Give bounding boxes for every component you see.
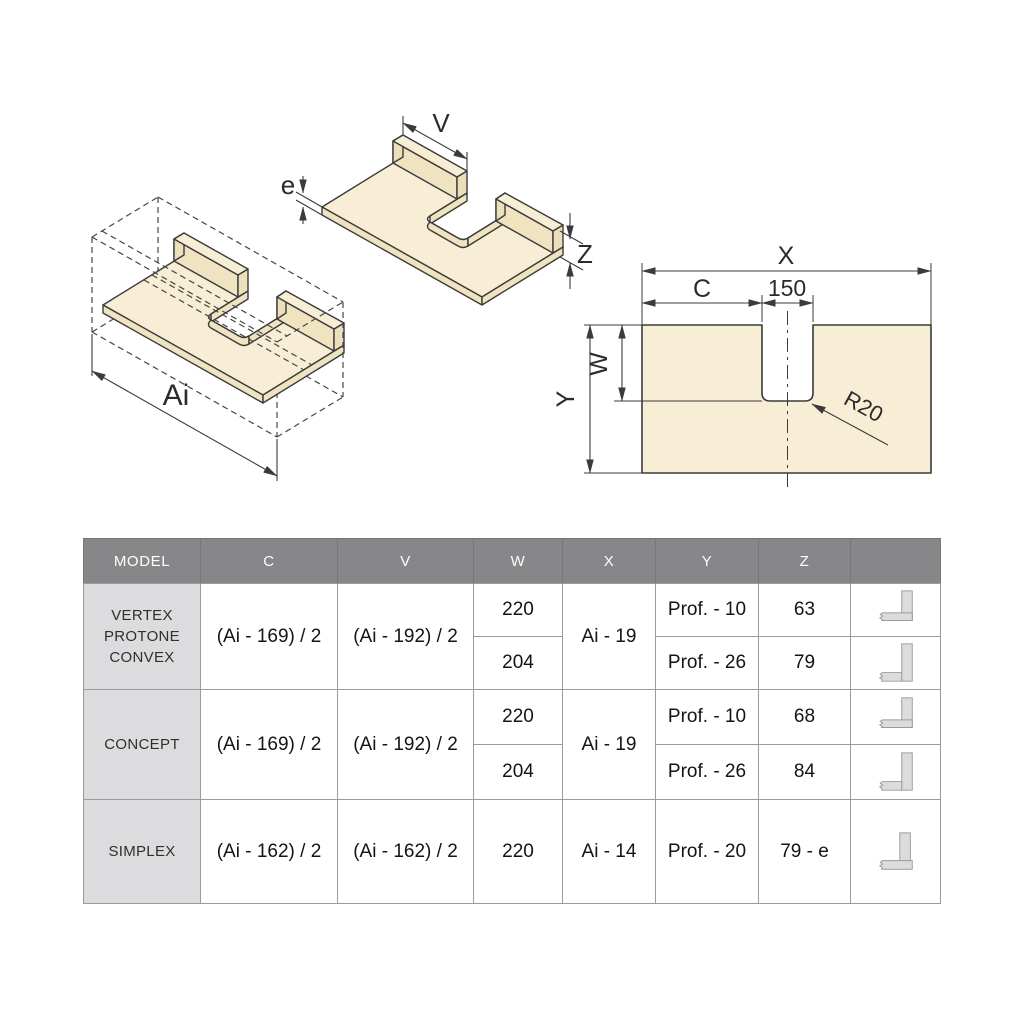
worktop-panel	[322, 135, 563, 305]
technical-drawings: Ai V e Z	[0, 0, 1024, 530]
dim-label-ai: Ai	[163, 379, 190, 412]
model-name-line: VERTEX	[84, 605, 200, 626]
dim-label-x: X	[778, 242, 795, 270]
w-value: 204	[474, 637, 563, 690]
y-value: Prof. - 26	[656, 637, 759, 690]
header-y: Y	[656, 539, 759, 584]
model-name-line: CONVEX	[84, 647, 200, 668]
w-value: 220	[474, 690, 563, 745]
dim-label-150: 150	[768, 275, 806, 301]
v-value: (Ai - 192) / 2	[338, 690, 474, 800]
v-value: (Ai - 162) / 2	[338, 800, 474, 904]
profile-overlap-section-icon	[873, 695, 919, 739]
profile-on-top-section-icon	[873, 830, 919, 874]
header-c: C	[201, 539, 338, 584]
w-value: 220	[474, 584, 563, 637]
y-value: Prof. - 26	[656, 745, 759, 800]
table-row: SIMPLEX (Ai - 162) / 2 (Ai - 162) / 2 22…	[84, 800, 941, 904]
dim-label-c: C	[693, 275, 711, 303]
z-value: 68	[759, 690, 851, 745]
header-z: Z	[759, 539, 851, 584]
section-cell	[851, 690, 941, 745]
dim-label-e: e	[281, 170, 295, 200]
table-row: CONCEPT (Ai - 169) / 2 (Ai - 192) / 2 22…	[84, 690, 941, 745]
table-header-row: MODEL C V W X Y Z	[84, 539, 941, 584]
z-value: 79	[759, 637, 851, 690]
section-cell	[851, 637, 941, 690]
y-value: Prof. - 10	[656, 690, 759, 745]
model-cell: SIMPLEX	[84, 800, 201, 904]
section-cell	[851, 745, 941, 800]
z-value: 79 - e	[759, 800, 851, 904]
table-row: VERTEX PROTONE CONVEX (Ai - 169) / 2 (Ai…	[84, 584, 941, 637]
model-cell: VERTEX PROTONE CONVEX	[84, 584, 201, 690]
model-name-line: PROTONE	[84, 626, 200, 647]
v-value: (Ai - 192) / 2	[338, 584, 474, 690]
c-value: (Ai - 169) / 2	[201, 690, 338, 800]
w-value: 220	[474, 800, 563, 904]
model-name-line: CONCEPT	[84, 734, 200, 755]
header-w: W	[474, 539, 563, 584]
header-model: MODEL	[84, 539, 201, 584]
x-value: Ai - 19	[563, 584, 656, 690]
model-cell: CONCEPT	[84, 690, 201, 800]
header-x: X	[563, 539, 656, 584]
header-v: V	[338, 539, 474, 584]
spec-sheet-page: { "drawings": { "cabinet_iso": { "dim_ai…	[0, 0, 1024, 1024]
z-value: 63	[759, 584, 851, 637]
dim-label-w: W	[585, 352, 613, 376]
header-section	[851, 539, 941, 584]
plan-view-drawing: X C 150 W Y R20	[552, 242, 931, 487]
cabinet-iso-drawing: Ai	[92, 197, 344, 481]
dim-label-v: V	[432, 108, 450, 138]
x-value: Ai - 19	[563, 690, 656, 800]
e-dimension	[296, 176, 322, 224]
c-value: (Ai - 162) / 2	[201, 800, 338, 904]
dimensions-table: MODEL C V W X Y Z VERTEX PROTONE CONVEX …	[83, 538, 941, 904]
w-value: 204	[474, 745, 563, 800]
dim-label-y: Y	[552, 390, 580, 407]
model-name-line: SIMPLEX	[84, 841, 200, 862]
plan-panel-outline	[642, 325, 931, 473]
section-cell	[851, 800, 941, 904]
x-value: Ai - 14	[563, 800, 656, 904]
y-value: Prof. - 20	[656, 800, 759, 904]
section-cell	[851, 584, 941, 637]
y-value: Prof. - 10	[656, 584, 759, 637]
profile-butt-section-icon	[873, 641, 919, 685]
profile-overlap-section-icon	[873, 588, 919, 632]
profile-butt-section-icon	[873, 750, 919, 794]
dim-label-z: Z	[577, 239, 593, 269]
z-value: 84	[759, 745, 851, 800]
worktop-iso-drawing: V e Z	[281, 108, 593, 305]
c-value: (Ai - 169) / 2	[201, 584, 338, 690]
